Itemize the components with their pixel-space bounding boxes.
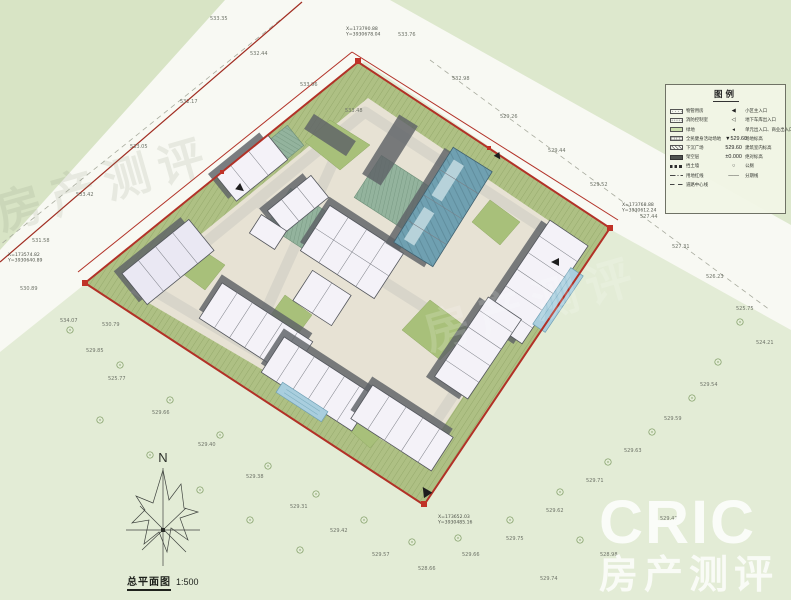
legend-item-label: 下沉广场 xyxy=(686,145,704,151)
legend-item: 物管用房 xyxy=(670,108,721,114)
legend-glyph-icon: ±0.000 xyxy=(725,154,742,160)
elevation-label: 525.75 xyxy=(736,306,754,312)
boundary-coordinate-label: X=173768.88Y=3930612.24 xyxy=(621,202,656,213)
elevation-label: 531.58 xyxy=(32,238,50,244)
elevation-label: 529.59 xyxy=(664,416,682,422)
legend-item-label: 架空层 xyxy=(686,154,699,160)
elevation-label: 532.17 xyxy=(180,99,198,105)
drawing-title: 总平面图 xyxy=(127,577,171,591)
elevation-label: 529.63 xyxy=(624,448,642,454)
elevation-label: 527.31 xyxy=(672,244,690,250)
elevation-label: 526.23 xyxy=(706,274,724,280)
legend-glyph-icon: ◂ xyxy=(725,127,742,133)
legend-item: 架空层 xyxy=(670,154,721,160)
elevation-label: 529.75 xyxy=(506,536,524,542)
elevation-label: 532.98 xyxy=(452,76,470,82)
drawing-title-block: 总平面图1:500 xyxy=(127,573,199,588)
elevation-label: 528.66 xyxy=(418,566,436,572)
elevation-label: 532.44 xyxy=(250,51,268,57)
elevation-label: 529.66 xyxy=(462,552,480,558)
elevation-label: 533.76 xyxy=(398,32,416,38)
legend-item-label: 建筑室内标高 xyxy=(745,145,771,151)
legend-glyph-icon: 529.60 xyxy=(725,145,742,151)
legend-swatch-diag xyxy=(670,145,683,150)
legend-right-column: ◀小区主入口◁地下车库出入口◂单元出入口、商业出入口▼529.60场地标高529… xyxy=(725,105,791,191)
legend-swatch-dots2 xyxy=(670,118,683,123)
brand-logo: CRIC xyxy=(599,492,779,553)
elevation-label: 529.26 xyxy=(500,114,518,120)
legend-item: ◁地下车库出入口 xyxy=(725,117,791,123)
legend-item: ——分期线 xyxy=(725,173,791,179)
elevation-label: 529.54 xyxy=(700,382,718,388)
boundary-coordinate-label: X=173574.82Y=3930640.89 xyxy=(7,252,42,263)
legend-item: ◀小区主入口 xyxy=(725,108,791,114)
legend-swatch-solid xyxy=(670,155,683,160)
boundary-corner-marker xyxy=(82,280,88,286)
legend-item: 绿地 xyxy=(670,127,721,133)
elevation-label: 525.77 xyxy=(108,376,126,382)
elevation-label: 534.07 xyxy=(60,318,78,324)
legend-left-column: 物管用房消防控制室绿地全民健身活动场地下沉广场架空层挡土墙用地红线道路中心线 xyxy=(670,105,721,191)
legend-item: 529.60建筑室内标高 xyxy=(725,145,791,151)
elevation-label: 529.52 xyxy=(590,182,608,188)
legend-title: 图例 xyxy=(713,88,739,102)
legend-glyph-icon: ◀ xyxy=(725,108,742,114)
legend-item-label: 道路中心线 xyxy=(686,182,708,188)
legend-swatch-dashes xyxy=(670,165,683,168)
legend-item-label: 小区主入口 xyxy=(745,108,767,114)
elevation-label: 529.74 xyxy=(540,576,558,582)
brand-watermark: CRIC 房产测评 xyxy=(599,492,779,595)
elevation-label: 529.85 xyxy=(86,348,104,354)
north-wind-rose: N xyxy=(118,448,208,573)
north-label: N xyxy=(158,450,167,465)
boundary-corner-marker xyxy=(421,501,427,507)
elevation-label: 533.96 xyxy=(300,82,318,88)
legend-box: 图例 物管用房消防控制室绿地全民健身活动场地下沉广场架空层挡土墙用地红线道路中心… xyxy=(665,84,786,214)
legend-item-label: 用地红线 xyxy=(686,173,704,179)
legend-item-label: 绝对标高 xyxy=(745,154,763,160)
legend-swatch-grid xyxy=(670,136,683,141)
legend-item-label: 地下车库出入口 xyxy=(745,117,776,123)
elevation-label: 529.62 xyxy=(546,508,564,514)
elevation-label: 524.21 xyxy=(756,340,774,346)
boundary-coordinate-label: X=173652.03Y=3930485.16 xyxy=(437,514,472,525)
elevation-label: 533.48 xyxy=(345,108,363,114)
site-plan-page: 532.44533.35532.17533.05533.42531.58533.… xyxy=(0,0,791,600)
legend-swatch-green xyxy=(670,127,683,132)
legend-item-label: 场地标高 xyxy=(745,136,763,142)
legend-item: ◂单元出入口、商业出入口 xyxy=(725,127,791,133)
legend-item-label: 单元出入口、商业出入口 xyxy=(745,127,791,133)
legend-item: ○公厕 xyxy=(725,163,791,169)
legend-item-label: 消防控制室 xyxy=(686,117,708,123)
boundary-corner-marker xyxy=(607,225,613,231)
brand-subtitle: 房产测评 xyxy=(599,556,779,595)
legend-swatch-dash2 xyxy=(670,184,683,185)
elevation-label: 529.44 xyxy=(548,148,566,154)
legend-item: 挡土墙 xyxy=(670,163,721,169)
elevation-label: 533.35 xyxy=(210,16,228,22)
legend-swatch-dashdot xyxy=(670,175,683,176)
boundary-corner-marker xyxy=(355,58,361,64)
legend-item: 用地红线 xyxy=(670,173,721,179)
legend-glyph-icon: ○ xyxy=(725,163,742,169)
elevation-label: 530.79 xyxy=(102,322,120,328)
legend-item-label: 物管用房 xyxy=(686,108,704,114)
legend-glyph-icon: —— xyxy=(725,173,742,179)
legend-glyph-icon: ▼529.60 xyxy=(725,136,742,142)
elevation-label: 529.31 xyxy=(290,504,308,510)
legend-item-label: 绿地 xyxy=(686,127,695,133)
elevation-label: 527.44 xyxy=(640,214,658,220)
legend-item: 道路中心线 xyxy=(670,182,721,188)
drawing-scale: 1:500 xyxy=(176,577,199,587)
legend-item-label: 公厕 xyxy=(745,163,754,169)
legend-item-label: 分期线 xyxy=(745,173,758,179)
legend-item: ▼529.60场地标高 xyxy=(725,136,791,142)
elevation-label: 529.71 xyxy=(586,478,604,484)
elevation-label: 530.89 xyxy=(20,286,38,292)
boundary-coordinate-label: X=173790.88Y=3930678.04 xyxy=(345,26,380,37)
elevation-label: 529.66 xyxy=(152,410,170,416)
legend-item-label: 全民健身活动场地 xyxy=(686,136,721,142)
legend-swatch-dots xyxy=(670,109,683,114)
elevation-label: 533.05 xyxy=(130,144,148,150)
elevation-label: 533.42 xyxy=(76,192,94,198)
legend-item: ±0.000绝对标高 xyxy=(725,154,791,160)
legend-item-label: 挡土墙 xyxy=(686,163,699,169)
legend-glyph-icon: ◁ xyxy=(725,117,742,123)
elevation-label: 529.38 xyxy=(246,474,264,480)
elevation-label: 529.57 xyxy=(372,552,390,558)
legend-item: 全民健身活动场地 xyxy=(670,136,721,142)
elevation-label: 529.42 xyxy=(330,528,348,534)
legend-item: 消防控制室 xyxy=(670,117,721,123)
legend-item: 下沉广场 xyxy=(670,145,721,151)
